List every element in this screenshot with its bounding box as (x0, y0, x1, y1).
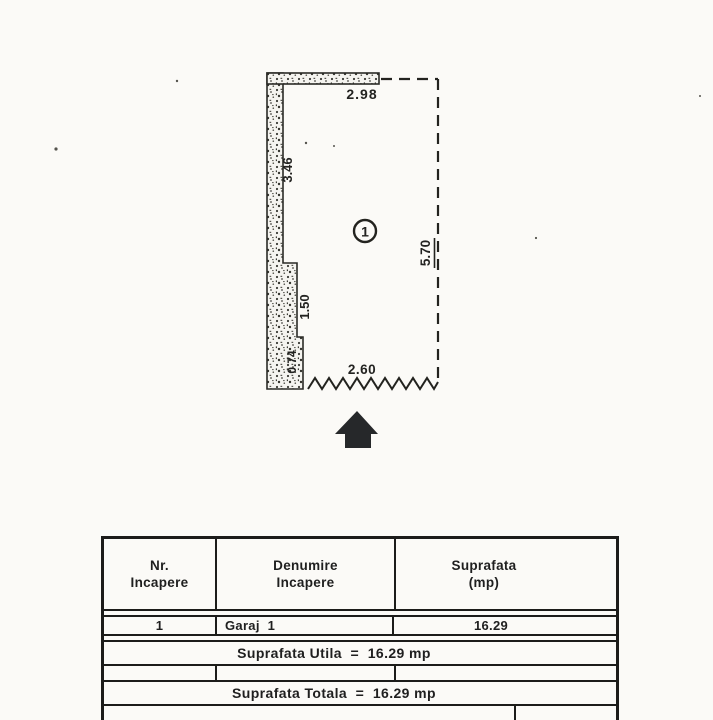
header-cell-suprafata: Suprafata (mp) (396, 539, 616, 609)
north-arrow-icon (335, 411, 378, 448)
header-denumire-line1: Denumire (273, 557, 338, 574)
header-suprafata-line1: Suprafata (452, 557, 517, 574)
double-rule (104, 634, 616, 642)
room-number-badge: 1 (354, 220, 376, 242)
dim-right-label: 5.70 (418, 240, 433, 266)
double-rule (104, 609, 616, 617)
scanned-cadastral-sheet: 1 2.98 3.46 1.50 0.74 2.60 5.70 Nr. (0, 0, 713, 720)
empty-spacer-row (104, 666, 616, 682)
suprafata-utila-row: Suprafata Utila = 16.29 mp (104, 642, 616, 666)
header-suprafata-line2: (mp) (469, 574, 499, 591)
wall-left-hatched (267, 73, 303, 389)
dim-left-upper-label: 3.46 (280, 157, 295, 182)
room-number-label: 1 (361, 224, 369, 240)
table-header-row: Nr. Incapere Denumire Incapere Suprafata… (104, 539, 616, 609)
dim-left-lower-label: 0.74 (285, 350, 299, 374)
header-nr-line2: Incapere (131, 574, 189, 591)
header-cell-denumire: Denumire Incapere (217, 539, 396, 609)
header-denumire-line2: Incapere (277, 574, 335, 591)
clipped-bottom-row (104, 706, 616, 720)
dim-right-group: 5.70 (418, 238, 435, 268)
empty-cell (396, 666, 616, 680)
suprafata-totala-row: Suprafata Totala = 16.29 mp (104, 682, 616, 706)
stub-column-divider (514, 706, 516, 720)
dim-left-middle-label: 1.50 (297, 294, 312, 319)
header-cell-nr: Nr. Incapere (104, 539, 217, 609)
empty-cell (104, 666, 217, 680)
boundary-zigzag-bottom (308, 378, 438, 389)
dim-bottom-label: 2.60 (348, 362, 376, 377)
row-nr-cell: 1 (104, 617, 217, 634)
scan-specks (54, 80, 701, 239)
wall-top-hatched (267, 73, 379, 84)
room-area-table: Nr. Incapere Denumire Incapere Suprafata… (101, 536, 619, 720)
row-suprafata-cell: 16.29 (394, 617, 616, 634)
floor-plan-drawing: 1 2.98 3.46 1.50 0.74 2.60 5.70 (0, 0, 713, 470)
empty-cell (217, 666, 396, 680)
row-denumire-cell: Garaj 1 (217, 617, 394, 634)
table-row: 1 Garaj 1 16.29 (104, 617, 616, 634)
header-nr-line1: Nr. (150, 557, 169, 574)
dim-top-label: 2.98 (346, 86, 377, 102)
